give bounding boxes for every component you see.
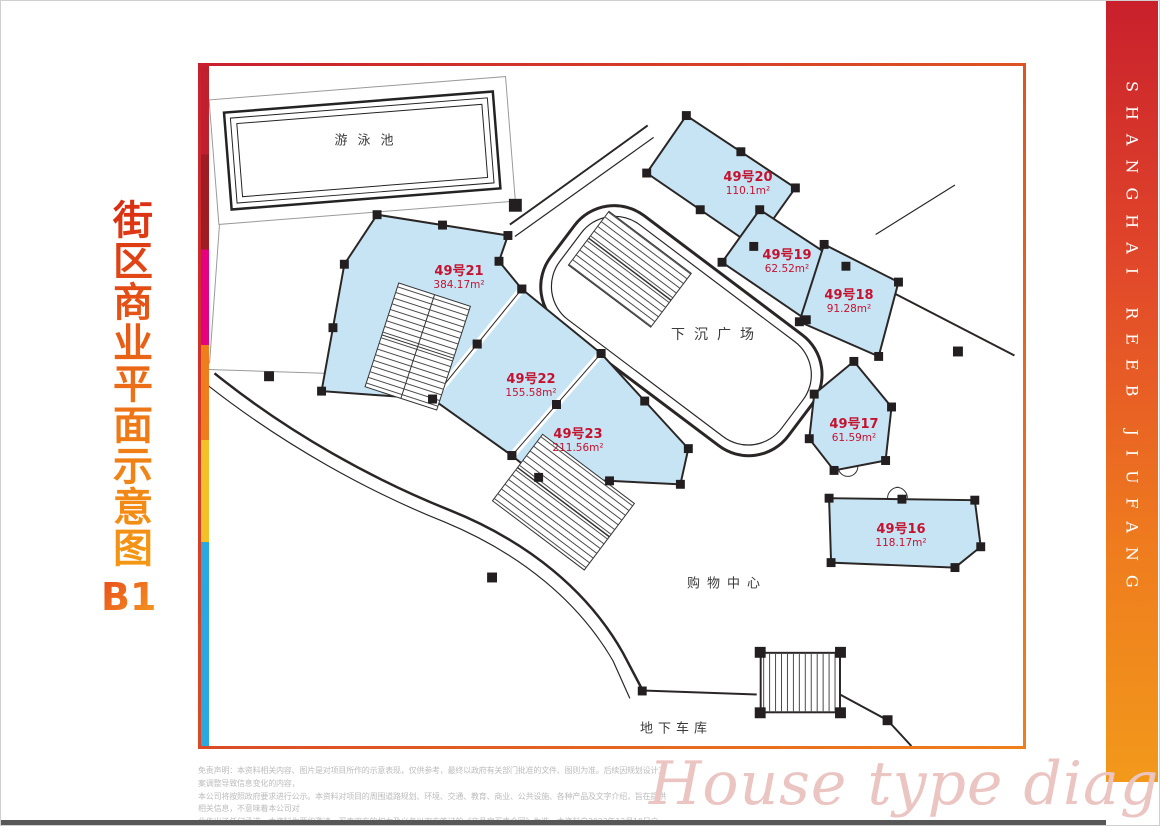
column-marker: [605, 476, 614, 485]
unit-area: 118.17m²: [875, 537, 926, 550]
column-marker: [718, 258, 727, 267]
unit-name: 49号16: [875, 522, 926, 537]
column-marker: [810, 390, 819, 399]
page: 街区商业平面示意图 B1: [0, 0, 1160, 826]
column-marker: [795, 317, 804, 326]
watermark-text: House type diagram: [649, 749, 1160, 819]
unit-name: 49号20: [723, 170, 772, 185]
column-marker: [682, 111, 691, 120]
disclaimer-line: 本公司将按照政府要求进行公示。本资料对项目的周围道路规划、环境、交通、教育、商业…: [198, 791, 668, 817]
column-marker: [473, 340, 482, 349]
column-marker: [552, 400, 561, 409]
unit-area: 211.56m²: [552, 442, 603, 455]
plan-frame: 游泳池 下沉广场 购物中心 地下车库 49号21 384.17m² 49号22 …: [198, 63, 1026, 749]
column-marker: [428, 395, 437, 404]
garage-label: 地下车库: [640, 718, 712, 737]
column-marker: [755, 205, 764, 214]
page-title-level: B1: [101, 575, 155, 619]
unit-49-18-label: 49号18 91.28m²: [824, 288, 873, 316]
column-marker: [976, 542, 985, 551]
door-arc-icons: [838, 466, 907, 498]
swimming-pool: [209, 77, 515, 225]
column-marker: [849, 357, 858, 366]
unit-49-20-label: 49号20 110.1m²: [723, 170, 772, 198]
column-marker: [894, 278, 903, 287]
bottom-edge-bar: [1, 820, 1106, 825]
unit-area: 155.58m²: [505, 387, 556, 400]
column-marker: [791, 183, 800, 192]
column-marker: [317, 387, 326, 396]
mall-label: 购物中心: [687, 573, 767, 592]
plaza-label: 下沉广场: [671, 324, 763, 344]
unit-name: 49号22: [505, 372, 556, 387]
unit-49-19-label: 49号19 62.52m²: [762, 248, 811, 276]
column-marker: [830, 466, 839, 475]
column-marker: [881, 456, 890, 465]
unit-49-17-label: 49号17 61.59m²: [829, 417, 878, 445]
unit-49-22-label: 49号22 155.58m²: [505, 372, 556, 400]
unit-49-16-label: 49号16 118.17m²: [875, 522, 926, 550]
column-marker: [820, 240, 829, 249]
garage-ramp-icon: [755, 647, 846, 718]
unit-name: 49号17: [829, 417, 878, 432]
unit-area: 384.17m²: [433, 279, 484, 292]
disclaimer-text: 免责声明：本资料相关内容、图片是对项目所作的示意表现，仅供参考，最终以政府有关部…: [198, 765, 668, 826]
unit-name: 49号18: [824, 288, 873, 303]
column-marker: [340, 260, 349, 269]
unit-name: 49号19: [762, 248, 811, 263]
column-marker: [841, 262, 850, 271]
column-marker: [642, 169, 651, 178]
brand-sidebar: SHANGHAI REEB JIUFANG: [1106, 1, 1158, 782]
frame-color-strip: [201, 66, 209, 746]
column-marker: [805, 434, 814, 443]
disclaimer-line: 免责声明：本资料相关内容、图片是对项目所作的示意表现，仅供参考，最终以政府有关部…: [198, 765, 668, 791]
column-marker: [970, 496, 979, 505]
column-marker: [495, 257, 504, 266]
unit-name: 49号23: [552, 427, 603, 442]
column-marker: [534, 473, 543, 482]
column-marker: [696, 205, 705, 214]
column-marker: [517, 285, 526, 294]
column-marker: [749, 242, 758, 251]
unit-name: 49号21: [433, 264, 484, 279]
column-marker: [597, 349, 606, 358]
column-marker: [676, 480, 685, 489]
column-marker: [503, 231, 512, 240]
unit-49-21-label: 49号21 384.17m²: [433, 264, 484, 292]
column-marker: [736, 147, 745, 156]
page-title: 街区商业平面示意图: [101, 199, 155, 568]
unit-area: 110.1m²: [723, 185, 772, 198]
column-marker: [684, 444, 693, 453]
column-marker: [438, 221, 447, 230]
column-marker: [825, 494, 834, 503]
unit-area: 61.59m²: [829, 432, 878, 445]
column-marker: [874, 352, 883, 361]
column-marker: [887, 403, 896, 412]
unit-area: 91.28m²: [824, 303, 873, 316]
site-plan-drawing: [201, 66, 1023, 746]
column-marker: [827, 558, 836, 567]
brand-text: SHANGHAI REEB JIUFANG: [1123, 81, 1142, 602]
unit-area: 62.52m²: [762, 263, 811, 276]
column-marker: [373, 210, 382, 219]
unit-49-23-label: 49号23 211.56m²: [552, 427, 603, 455]
column-marker: [507, 451, 516, 460]
column-marker: [329, 323, 338, 332]
pool-label: 游泳池: [334, 130, 403, 149]
column-marker: [640, 397, 649, 406]
column-marker: [951, 563, 960, 572]
column-marker: [897, 495, 906, 504]
